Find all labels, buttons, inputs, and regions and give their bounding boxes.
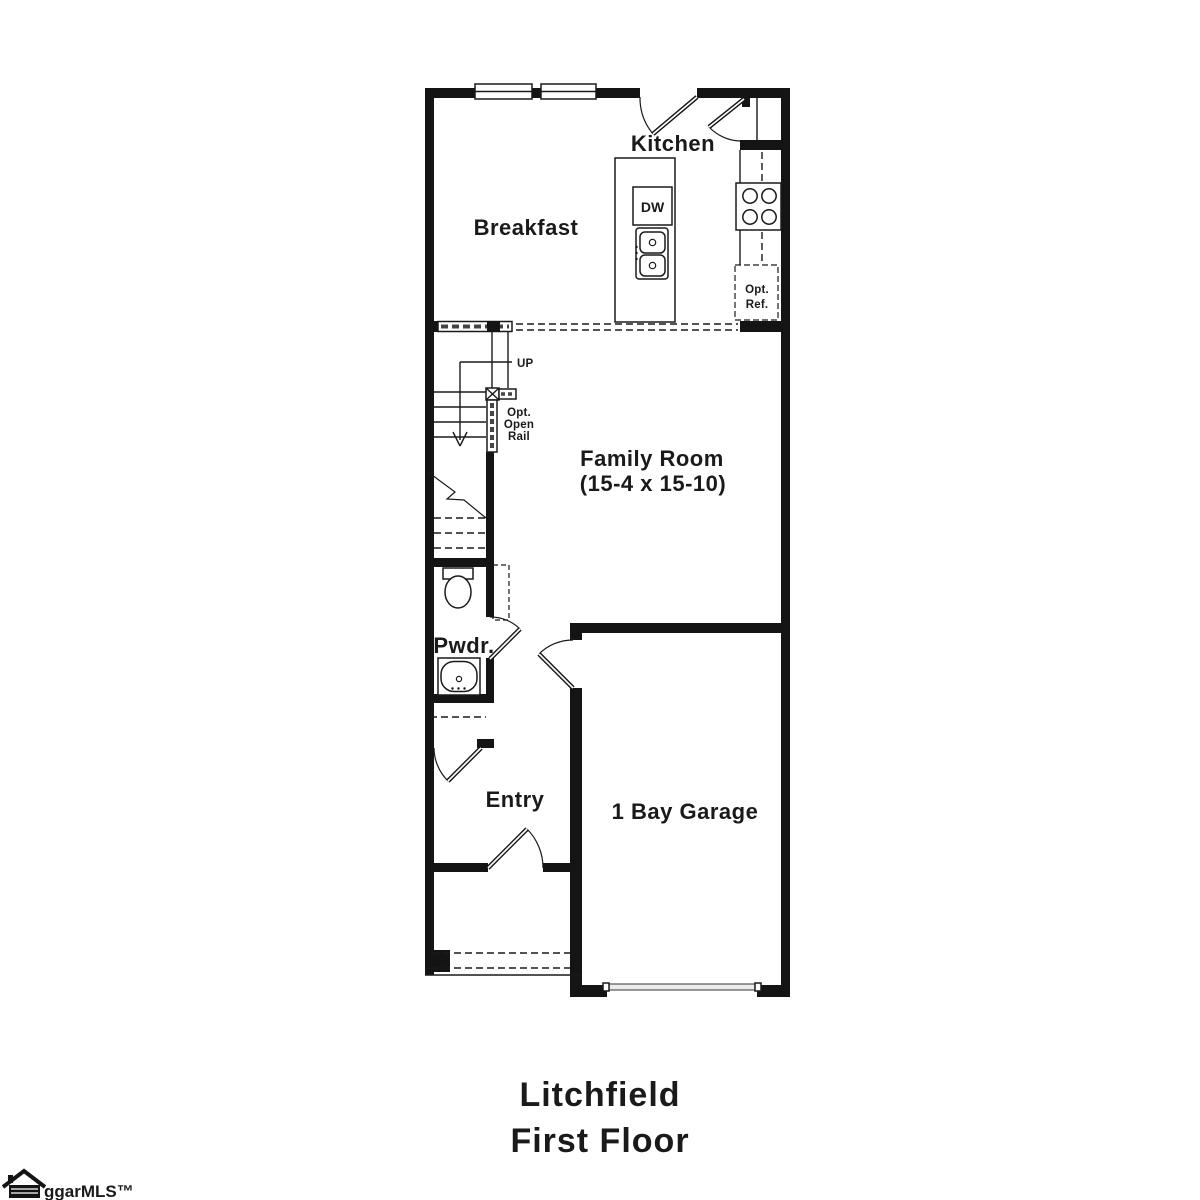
wall-left bbox=[425, 88, 434, 975]
plan-name: Litchfield bbox=[519, 1076, 680, 1114]
open-rail-label-line3: Rail bbox=[508, 431, 530, 443]
stair-break-line bbox=[428, 472, 486, 518]
garage-overhead-door bbox=[603, 983, 761, 991]
back-door bbox=[640, 97, 697, 134]
wall-right bbox=[781, 88, 790, 997]
powder-room-fixtures bbox=[438, 568, 480, 695]
stair-side-wall bbox=[486, 452, 494, 567]
house-icon bbox=[3, 1171, 45, 1198]
open-rail-label-line2: Open bbox=[504, 419, 534, 431]
open-rail-label-line1: Opt. bbox=[507, 407, 531, 419]
floor-plan-page: Kitchen Breakfast Family Room (15-4 x 15… bbox=[0, 0, 1200, 1200]
kitchen-island bbox=[615, 158, 675, 322]
garage-door-panel bbox=[607, 984, 757, 990]
kitchen-label: Kitchen bbox=[631, 131, 715, 156]
wall-front-left bbox=[425, 863, 488, 872]
vanity-knob bbox=[451, 687, 453, 689]
toilet-bowl bbox=[445, 576, 471, 608]
vanity-knob bbox=[457, 687, 459, 689]
floor-plan-svg: Kitchen Breakfast Family Room (15-4 x 15… bbox=[0, 0, 1200, 1200]
door-swing-arc bbox=[640, 97, 653, 134]
mls-logo: ggarMLS™ bbox=[3, 1171, 134, 1200]
house-body bbox=[9, 1185, 40, 1198]
door-swing-arc bbox=[527, 829, 543, 868]
stove-burner bbox=[743, 189, 757, 203]
kitchen-bottom-stub bbox=[740, 321, 790, 332]
mls-logo-text: ggarMLS™ bbox=[44, 1182, 134, 1200]
garage-entry-door bbox=[539, 640, 573, 688]
stair-rail-post bbox=[487, 321, 500, 332]
room-labels: Kitchen Breakfast Family Room (15-4 x 15… bbox=[433, 131, 758, 824]
vanity-knob bbox=[463, 687, 465, 689]
plan-title: Litchfield First Floor bbox=[510, 1076, 689, 1160]
breakfast-bottom-stub bbox=[425, 321, 438, 332]
plan-floor: First Floor bbox=[510, 1122, 689, 1160]
up-arrowhead bbox=[460, 432, 467, 446]
stove-burner bbox=[743, 210, 757, 224]
garage-door-end bbox=[755, 983, 761, 991]
entry-label: Entry bbox=[486, 787, 545, 812]
door-swing-arc bbox=[490, 617, 520, 629]
door-swing-arc bbox=[539, 640, 573, 654]
stove-burner bbox=[762, 210, 776, 224]
door-swing-arc bbox=[434, 748, 448, 781]
family-room-dimensions: (15-4 x 15-10) bbox=[580, 471, 726, 496]
garage-top-wall bbox=[570, 623, 790, 633]
door-leaf-inner bbox=[488, 829, 527, 868]
sink-knob bbox=[635, 246, 637, 248]
door-leaf-inner bbox=[539, 654, 573, 688]
family-room-label: Family Room bbox=[580, 446, 724, 471]
garage-label: 1 Bay Garage bbox=[612, 799, 759, 824]
door-leaf-inner bbox=[448, 748, 481, 781]
garage-left-stub bbox=[570, 623, 582, 640]
breakfast-label: Breakfast bbox=[474, 215, 579, 240]
garage-bottom-stub-right bbox=[757, 985, 790, 997]
sink-knob bbox=[635, 258, 637, 260]
closet-stub-left bbox=[425, 739, 434, 748]
powder-label: Pwdr. bbox=[433, 633, 494, 658]
sink-knob bbox=[635, 252, 637, 254]
opt-ref-label-line2: Ref. bbox=[746, 299, 769, 311]
door-leaf-inner bbox=[653, 97, 697, 134]
stove-burner bbox=[762, 189, 776, 203]
front-door bbox=[488, 829, 543, 868]
stair-bottom-wall bbox=[425, 558, 494, 567]
door-leaf-inner bbox=[709, 99, 744, 127]
dishwasher-label: DW bbox=[641, 199, 665, 215]
pantry-stub-bottom bbox=[740, 140, 783, 150]
sink-basin bbox=[640, 255, 665, 276]
up-arrowhead bbox=[453, 432, 460, 446]
stairs bbox=[428, 321, 516, 548]
garage-left-wall bbox=[570, 688, 582, 997]
opt-ref-label-line1: Opt. bbox=[745, 284, 769, 296]
sink-basin bbox=[640, 232, 665, 253]
garage-door-end bbox=[603, 983, 609, 991]
stairs-up-label: UP bbox=[517, 358, 534, 370]
closet-door bbox=[434, 748, 481, 781]
wall-top-right bbox=[697, 88, 790, 98]
powder-optional-dashed-box bbox=[493, 565, 509, 620]
